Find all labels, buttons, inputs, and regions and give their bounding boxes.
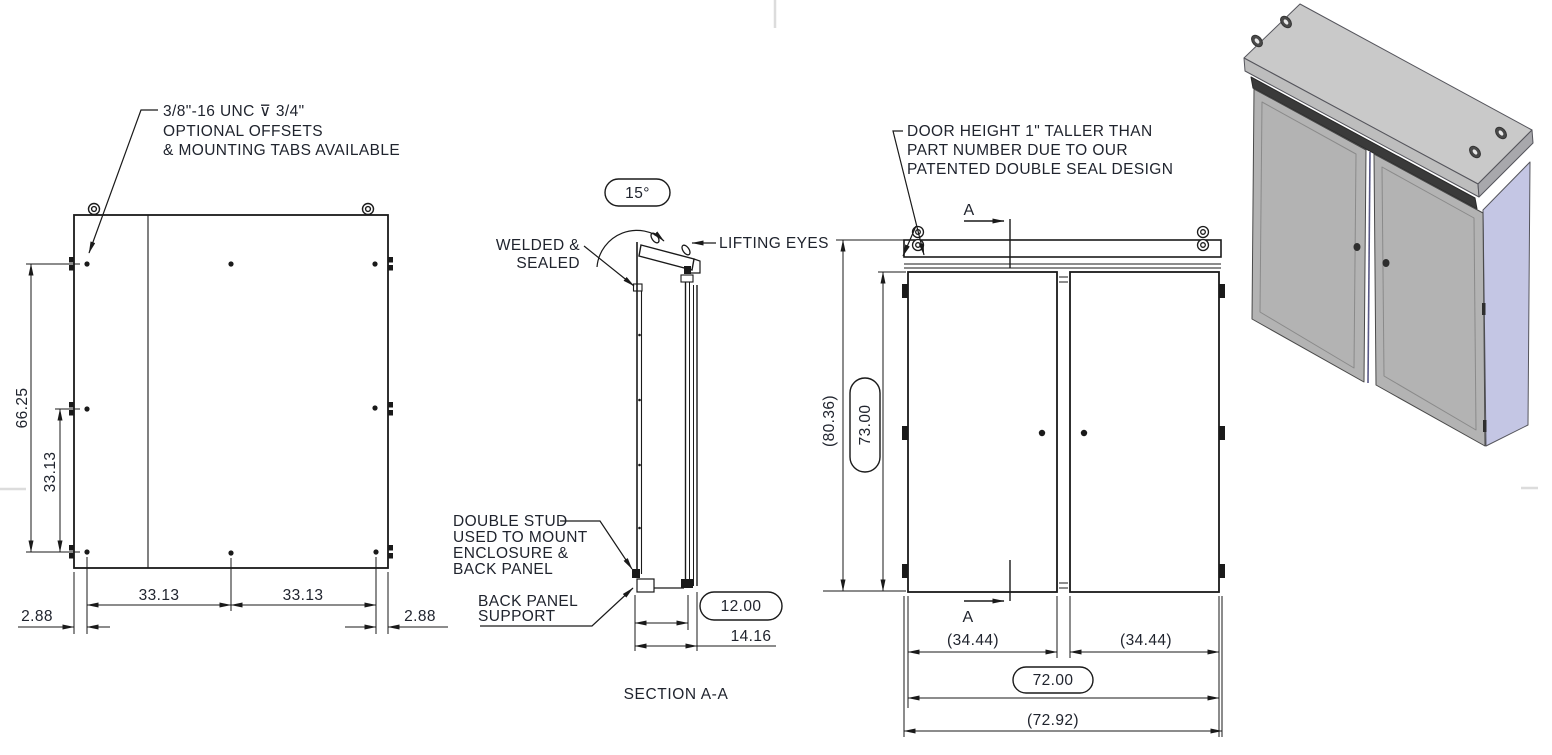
section-caption: SECTION A-A [624, 686, 729, 703]
double-stud-label-line2: USED TO MOUNT [453, 529, 588, 546]
rear-note-line3: & MOUNTING TABS AVAILABLE [163, 142, 400, 159]
left-door [908, 272, 1057, 592]
rear-dim-width-left: 33.13 [139, 587, 180, 604]
rear-note-line2: OPTIONAL OFFSETS [163, 123, 323, 140]
welded-label-line1: WELDED & [496, 237, 580, 254]
front-dim-height-overall: (80.36) [821, 395, 838, 447]
rear-dim-width-right: 33.13 [283, 587, 324, 604]
section-view: 15° WELDED & SEALED LIFTING EYES DOUBLE … [453, 179, 829, 703]
rear-dim-height-inner: 33.13 [42, 452, 59, 493]
rear-dim-height-outer: 66.25 [14, 388, 31, 429]
double-stud-label-line3: ENCLOSURE & [453, 545, 569, 562]
front-dim-width-overall: (72.92) [1027, 712, 1079, 729]
double-stud-label-line1: DOUBLE STUD [453, 513, 568, 530]
front-note-line2: PART NUMBER DUE TO OUR [907, 142, 1128, 159]
rear-dim-offset-right: 2.88 [404, 608, 436, 625]
lifting-eyes-label: LIFTING EYES [719, 235, 829, 252]
front-dim-width: 72.00 [1033, 672, 1074, 689]
front-view: DOOR HEIGHT 1" TALLER THAN PART NUMBER D… [821, 123, 1225, 737]
front-dim-door-height: 73.00 [857, 405, 874, 446]
iso-side-panel [1483, 162, 1530, 446]
rear-panel-outline [74, 215, 388, 568]
double-stud-label-line4: BACK PANEL [453, 561, 553, 578]
section-marker-top: A [963, 202, 974, 219]
front-top-plate [904, 240, 1221, 257]
front-dim-door-width-left: (34.44) [947, 632, 999, 649]
front-note-line3: PATENTED DOUBLE SEAL DESIGN [907, 161, 1173, 178]
engineering-drawing-sheet: 3/8"-16 UNC ⊽ 3/4" OPTIONAL OFFSETS & MO… [0, 0, 1552, 755]
angle-dim-value: 15° [625, 185, 650, 202]
iso-door-gap [1368, 152, 1370, 383]
rear-view: 3/8"-16 UNC ⊽ 3/4" OPTIONAL OFFSETS & MO… [14, 103, 448, 634]
rear-dim-offset-left: 2.88 [21, 608, 53, 625]
section-dim-depth-inner: 12.00 [721, 598, 762, 615]
back-panel-support [637, 579, 654, 592]
front-note-line1: DOOR HEIGHT 1" TALLER THAN [907, 123, 1153, 140]
front-dim-door-width-right: (34.44) [1120, 632, 1172, 649]
right-door [1070, 272, 1219, 592]
welded-leader [584, 246, 634, 286]
iso-view [1244, 4, 1533, 446]
section-marker-bottom: A [962, 609, 973, 626]
rear-note-line1: 3/8"-16 UNC ⊽ 3/4" [163, 103, 305, 120]
section-dim-depth-overall: 14.16 [731, 628, 772, 645]
lifting-eye-icon [89, 204, 374, 215]
welded-label-line2: SEALED [516, 255, 580, 272]
drawing-canvas: 3/8"-16 UNC ⊽ 3/4" OPTIONAL OFFSETS & MO… [0, 0, 1552, 755]
back-panel-label-line2: SUPPORT [478, 608, 556, 625]
